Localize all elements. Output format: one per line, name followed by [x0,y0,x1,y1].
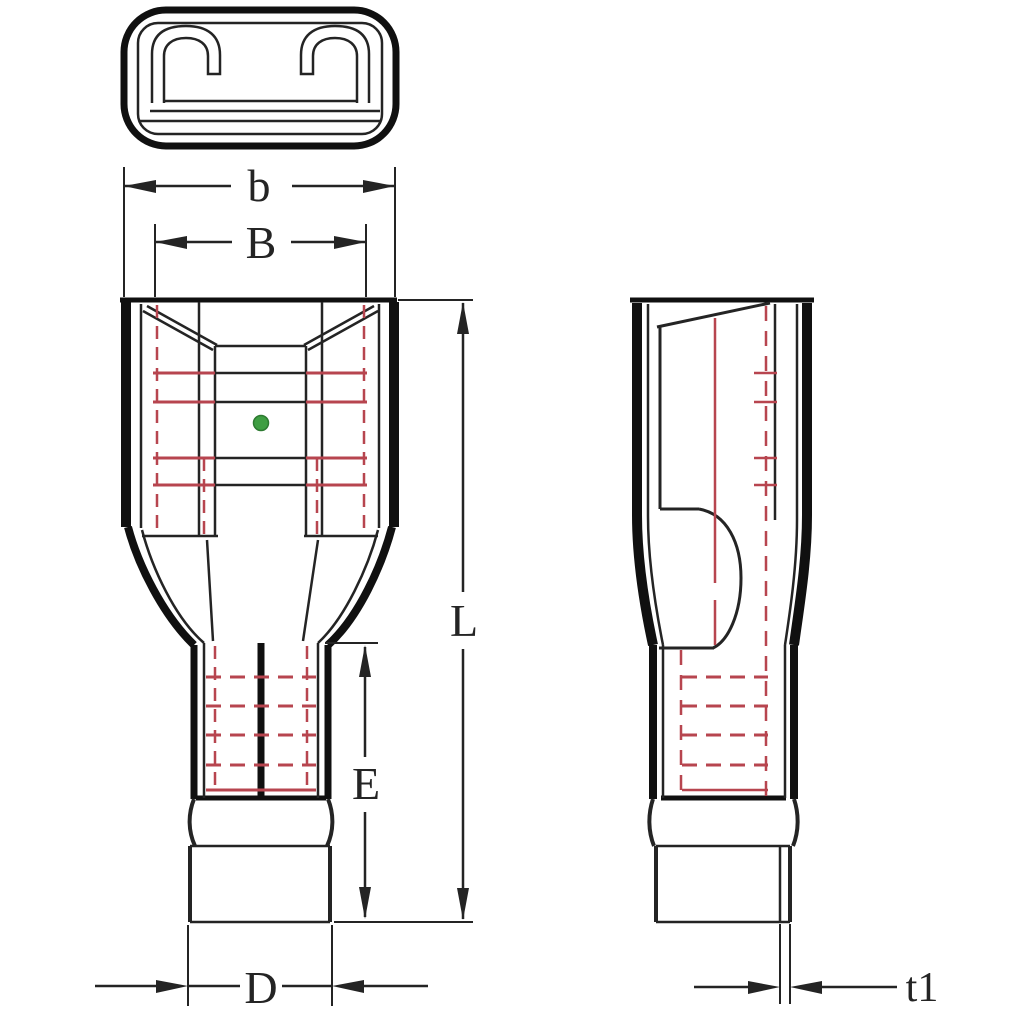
dim-B-arrow-right [334,236,366,249]
side-view [630,300,814,922]
dim-t1-arrow-left [748,981,780,994]
top-view-left-hook [152,26,220,103]
dim-E-arrow-top [359,645,371,677]
dimension-t1: t1 [694,924,938,1011]
dimension-E: E [325,643,380,919]
dim-label-b: b [248,160,271,211]
dimension-B: B [155,217,366,297]
dim-D-arrow-right [332,980,364,993]
dim-E-arrow-bottom [359,887,371,919]
front-tail-walls [190,799,333,922]
side-barrel-serrations [682,677,768,765]
drawing-canvas: b B L E D t1 [0,0,1024,1024]
dim-L-arrow-bottom [457,888,469,920]
side-hidden-dashed-verticals [681,306,766,798]
dim-b-arrow-right [363,180,395,193]
dim-B-arrow-left [155,236,187,249]
dim-label-D: D [244,962,277,1013]
front-sleeve-walls-upper [126,302,394,527]
side-barrel-walls [653,645,794,799]
front-inner-structure [141,302,379,922]
side-terminal-profile [657,303,770,648]
side-inner-sleeve-lines [648,304,797,922]
dim-L-arrow-top [457,302,469,334]
top-view-right-hook [301,26,369,103]
dim-label-E: E [352,758,380,809]
dim-label-L: L [450,595,478,646]
side-hidden-lines [682,318,777,790]
side-top-edge-and-barrel-end [630,300,814,798]
side-tail-walls [649,799,797,922]
top-view-channel-base-lines [140,101,381,121]
dim-t1-extension-lines [780,924,790,1004]
dim-label-B: B [246,217,277,268]
side-sleeve-walls-upper [637,303,807,645]
terminal-technical-drawing: b B L E D t1 [0,0,1024,1024]
dim-label-t1: t1 [906,965,939,1011]
front-center-green-dot [254,416,269,431]
front-sleeve-taper [128,527,392,645]
dimension-D: D [95,925,428,1013]
front-view [120,300,397,922]
top-view [124,10,396,146]
dim-D-arrow-left [156,980,188,993]
dim-b-arrow-left [124,180,156,193]
dim-t1-arrow-right [790,981,822,994]
